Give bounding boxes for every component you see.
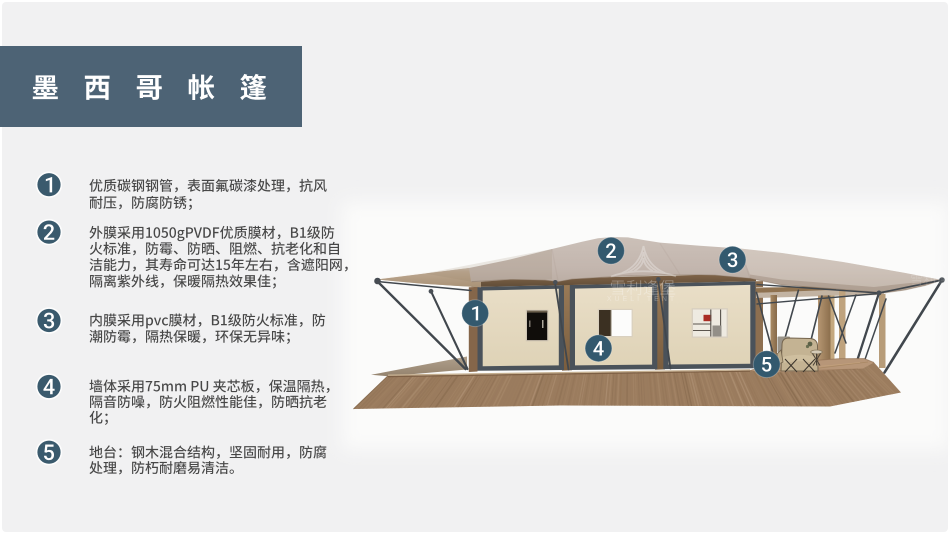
svg-text:XUELI TENT: XUELI TENT bbox=[607, 296, 677, 303]
